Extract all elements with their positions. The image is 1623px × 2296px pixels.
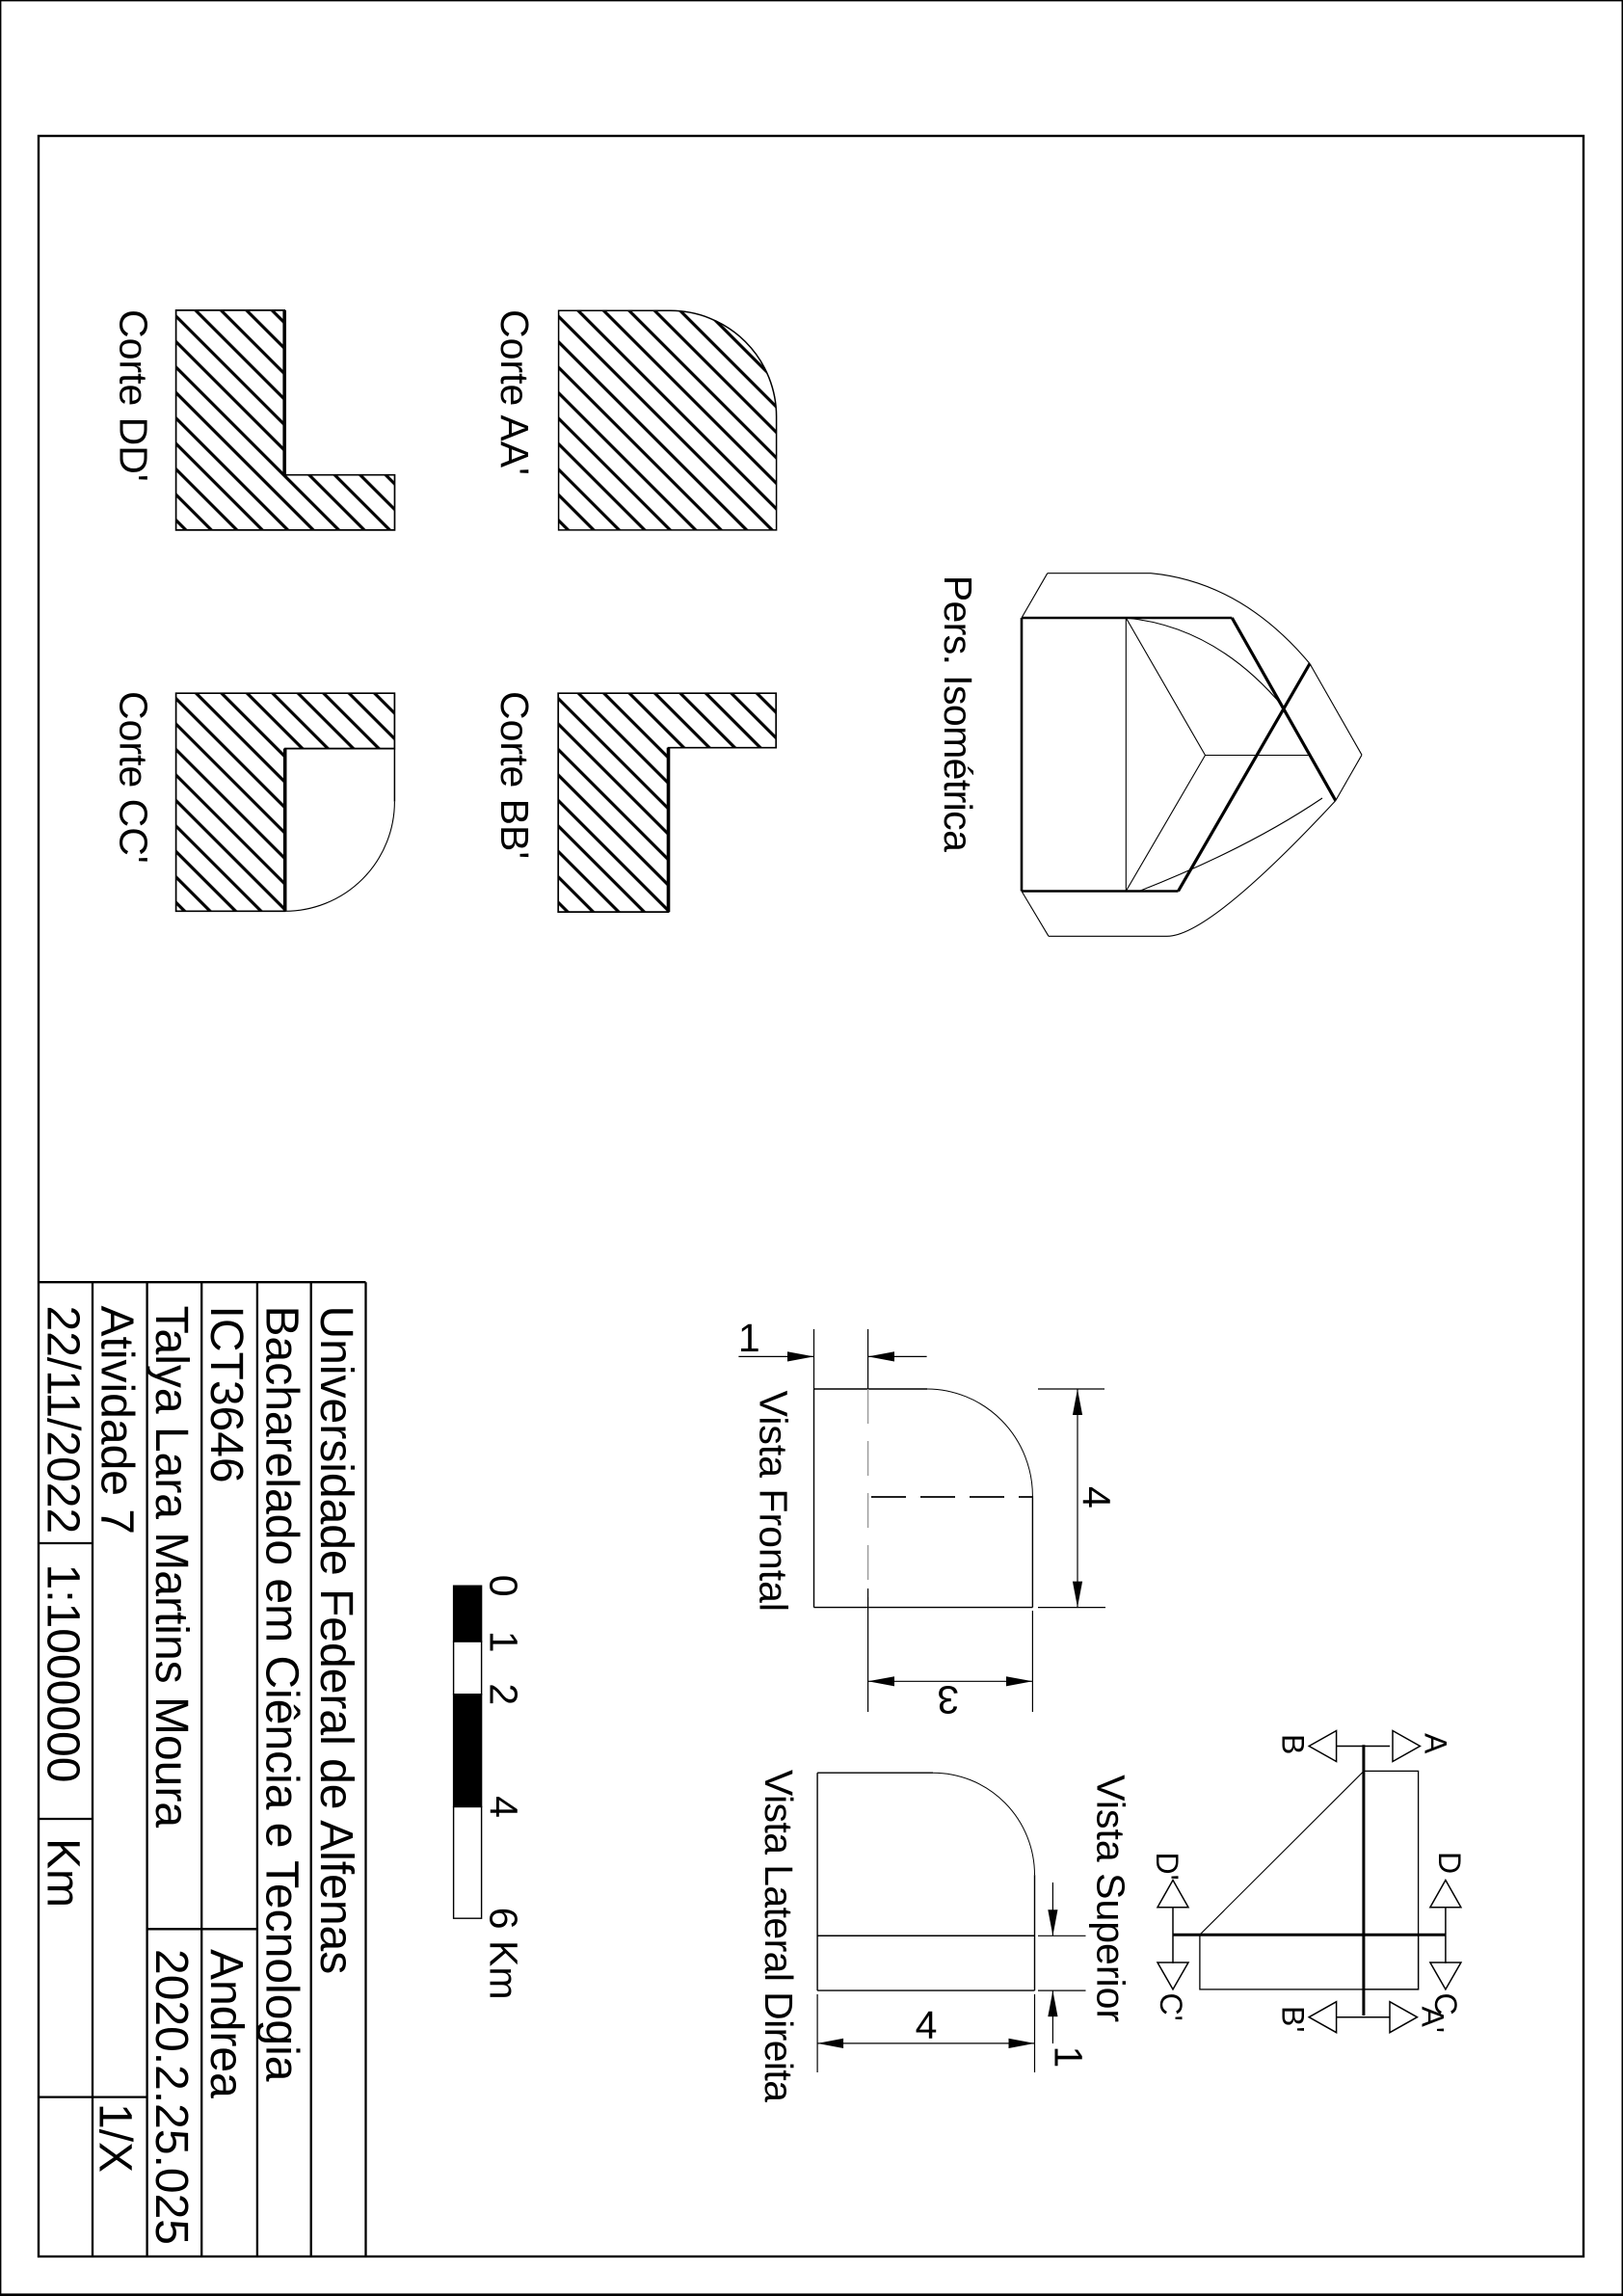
- svg-text:Vista Frontal: Vista Frontal: [752, 1391, 796, 1612]
- svg-text:22/11/2022: 22/11/2022: [38, 1306, 89, 1535]
- svg-text:A: A: [1419, 1733, 1453, 1754]
- svg-text:Universidade Federal de Alfena: Universidade Federal de Alfenas: [310, 1306, 361, 1975]
- svg-text:1/X: 1/X: [90, 2103, 141, 2173]
- svg-text:0: 0: [482, 1575, 526, 1597]
- svg-text:Pers. Isométrica: Pers. Isométrica: [936, 575, 980, 852]
- svg-text:Bacharelado em Ciência e Tecno: Bacharelado em Ciência e Tecnologia: [256, 1306, 307, 2082]
- svg-text:Corte BB': Corte BB': [492, 691, 537, 859]
- svg-text:Vista Lateral Direita: Vista Lateral Direita: [757, 1770, 801, 2102]
- svg-text:B': B': [1275, 2006, 1310, 2032]
- svg-text:C: C: [1428, 1993, 1463, 2016]
- svg-text:Vista Superior: Vista Superior: [1089, 1775, 1133, 2022]
- svg-text:ICT3646: ICT3646: [200, 1306, 252, 1483]
- svg-text:D': D': [1150, 1853, 1184, 1881]
- svg-text:1: 1: [1047, 2046, 1091, 2069]
- svg-text:6 Km: 6 Km: [482, 1908, 526, 2000]
- svg-text:Atividade 7: Atividade 7: [92, 1306, 143, 1535]
- svg-text:1: 1: [738, 1316, 760, 1360]
- svg-text:D: D: [1432, 1852, 1467, 1874]
- svg-text:Talya Lara Martins Moura: Talya Lara Martins Moura: [146, 1306, 197, 1829]
- svg-text:2020.2.25.025: 2020.2.25.025: [146, 1949, 197, 2245]
- svg-text:2: 2: [482, 1683, 526, 1705]
- svg-text:Corte CC': Corte CC': [112, 691, 156, 864]
- svg-text:Andrea: Andrea: [200, 1949, 252, 2098]
- svg-text:1: 1: [482, 1631, 526, 1653]
- svg-text:Corte AA': Corte AA': [492, 309, 537, 475]
- svg-text:1:1000000: 1:1000000: [38, 1564, 89, 1783]
- svg-text:Corte DD': Corte DD': [112, 309, 156, 482]
- svg-text:4: 4: [482, 1796, 526, 1818]
- svg-text:4: 4: [916, 2003, 938, 2047]
- svg-text:3: 3: [937, 1678, 959, 1722]
- svg-text:4: 4: [1074, 1486, 1118, 1508]
- svg-text:B: B: [1275, 1734, 1310, 1754]
- svg-text:C': C': [1154, 1993, 1188, 2021]
- svg-text:Km: Km: [38, 1838, 89, 1908]
